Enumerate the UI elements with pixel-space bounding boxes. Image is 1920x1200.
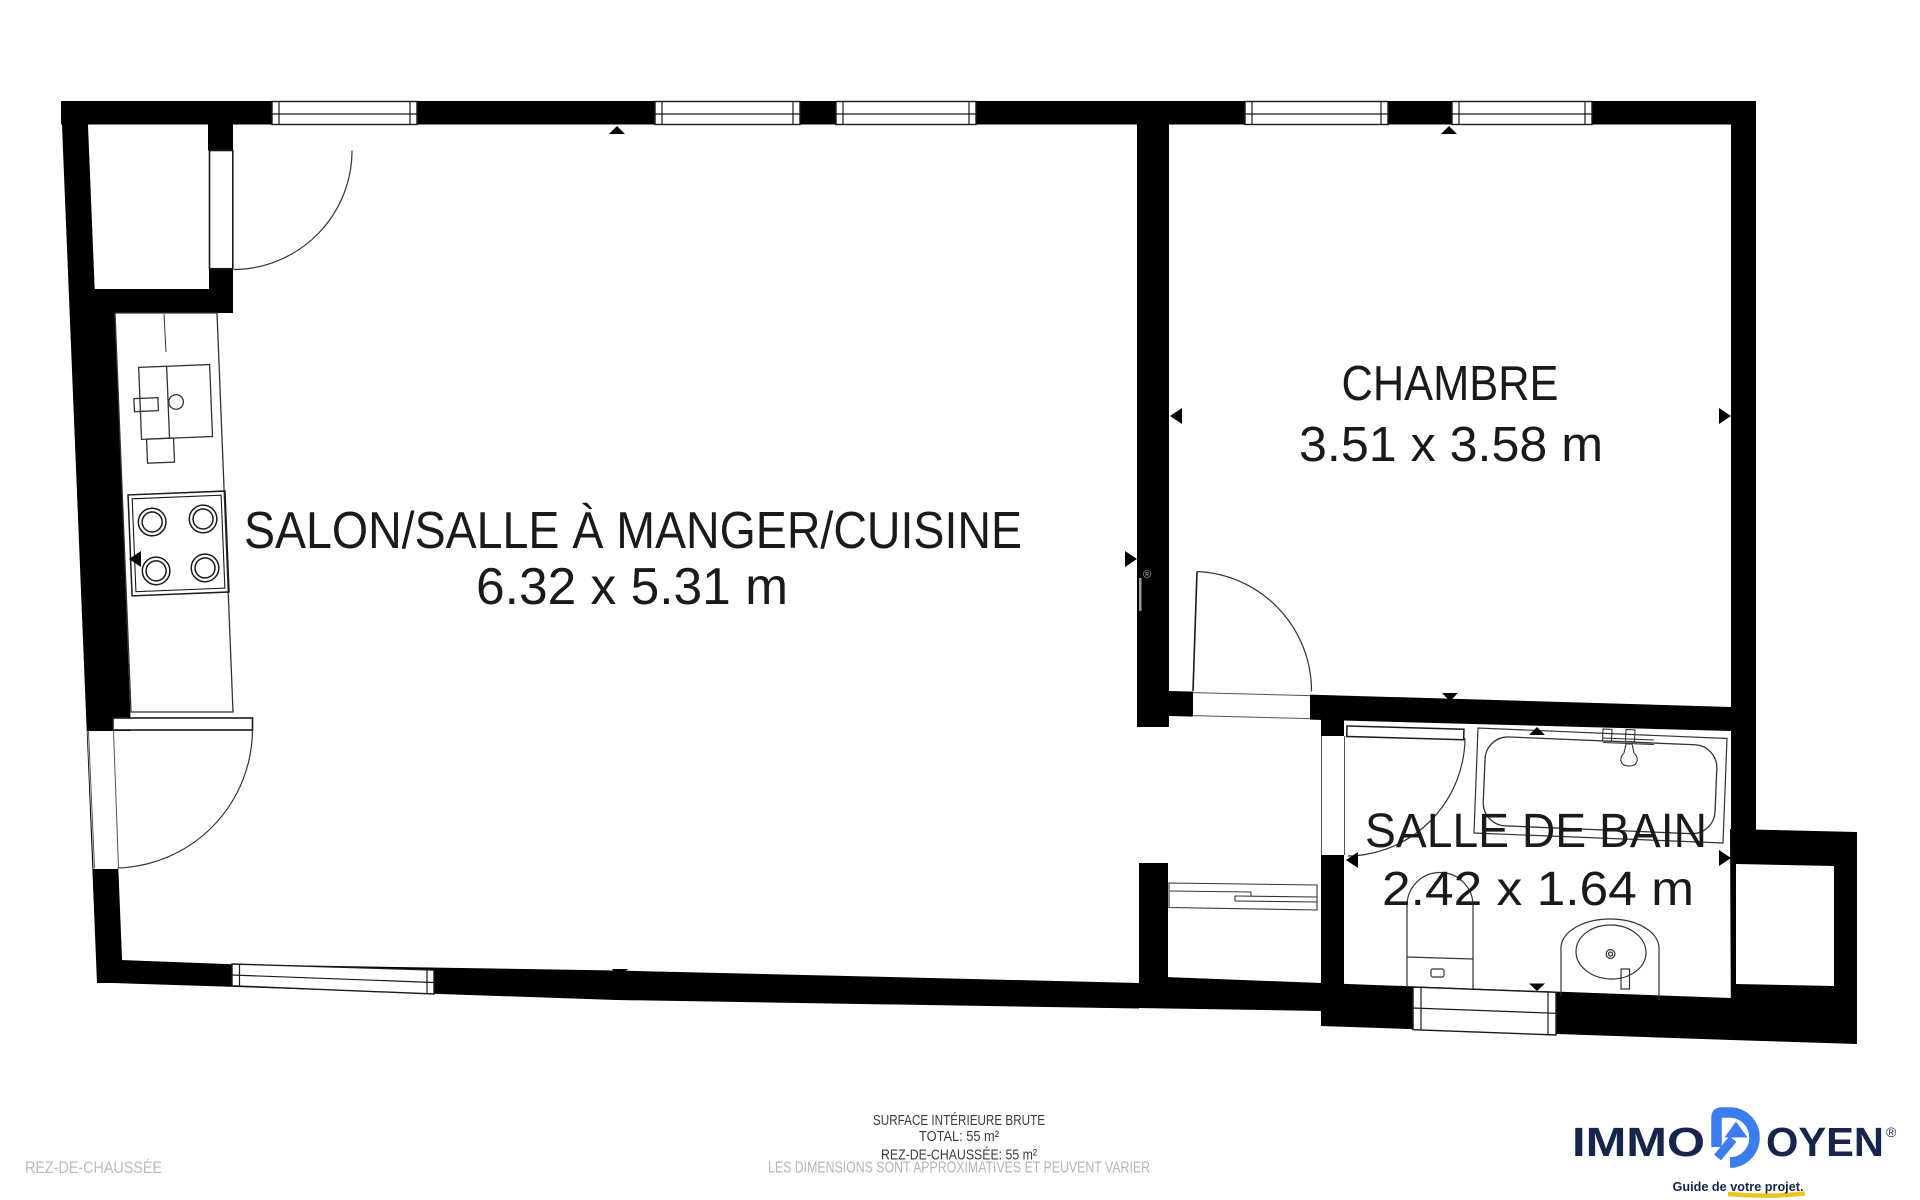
svg-text:6.32 x 5.31 m: 6.32 x 5.31 m	[476, 557, 788, 615]
svg-text:IMMO: IMMO	[1572, 1119, 1705, 1165]
svg-text:OYEN: OYEN	[1766, 1119, 1884, 1165]
svg-text:®: ®	[1143, 569, 1151, 581]
svg-text:2.42 x 1.64 m: 2.42 x 1.64 m	[1382, 863, 1694, 916]
svg-text:SALON/SALLE À MANGER/CUISINE: SALON/SALLE À MANGER/CUISINE	[244, 501, 1022, 559]
svg-text:®: ®	[1886, 1124, 1897, 1140]
svg-text:Guide de votre projet.: Guide de votre projet.	[1673, 1179, 1804, 1194]
svg-text:SALLE DE BAIN: SALLE DE BAIN	[1365, 805, 1707, 858]
svg-text:CHAMBRE: CHAMBRE	[1342, 356, 1559, 411]
svg-text:TOTAL: 55 m²: TOTAL: 55 m²	[919, 1128, 999, 1145]
svg-text:LES DIMENSIONS SONT APPROXIMAT: LES DIMENSIONS SONT APPROXIMATIVES ET PE…	[768, 1160, 1150, 1177]
svg-text:3.51 x 3.58 m: 3.51 x 3.58 m	[1299, 417, 1603, 472]
svg-text:REZ-DE-CHAUSSÉE: REZ-DE-CHAUSSÉE	[25, 1158, 162, 1177]
svg-text:SURFACE INTÉRIEURE BRUTE: SURFACE INTÉRIEURE BRUTE	[873, 1112, 1045, 1129]
